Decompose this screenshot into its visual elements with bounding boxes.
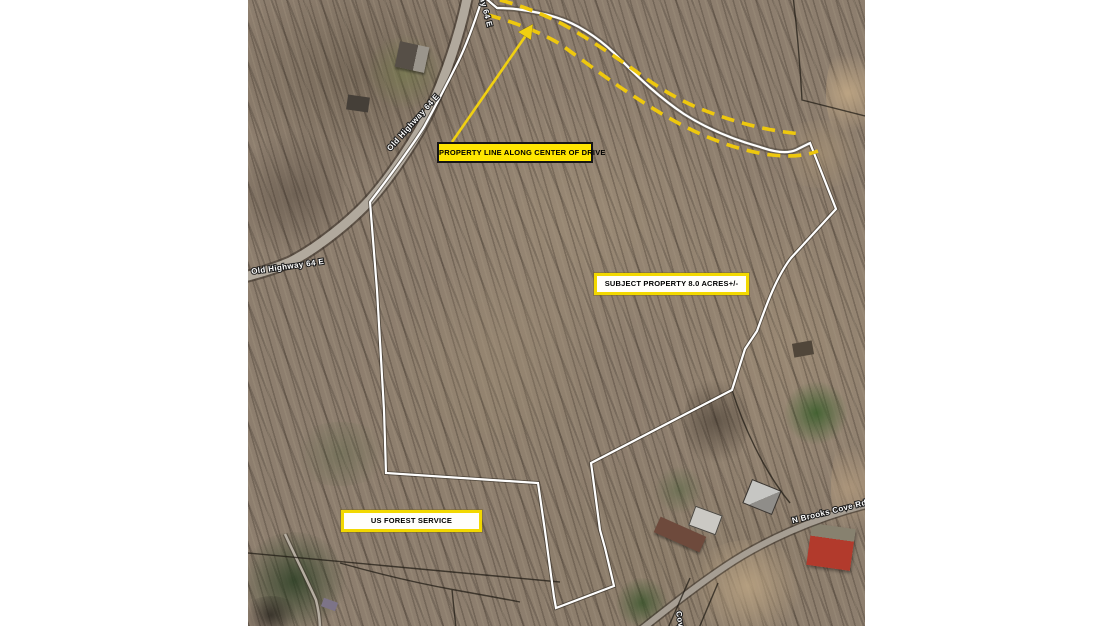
callout-property-line: PROPERTY LINE ALONG CENTER OF DRIVE bbox=[437, 142, 593, 163]
road-small-surface bbox=[285, 534, 320, 626]
callout-subject-property: SUBJECT PROPERTY 8.0 ACRES+/- bbox=[594, 273, 749, 295]
road-brooks-cove-surface bbox=[638, 504, 865, 626]
callout-us-forest: US FOREST SERVICE bbox=[341, 510, 482, 532]
aerial-map: Old Highway 64 E Old Highway 64 E Old Hi… bbox=[248, 0, 865, 626]
aerial-plat-page: Old Highway 64 E Old Highway 64 E Old Hi… bbox=[0, 0, 1112, 626]
drive-dashed-lower bbox=[488, 15, 818, 156]
road-label-bottom-partial: Cove Rd bbox=[674, 610, 689, 626]
road-old-highway-surface bbox=[248, 0, 468, 277]
drive bbox=[497, 8, 810, 152]
map-overlay: Old Highway 64 E Old Highway 64 E Old Hi… bbox=[248, 0, 865, 626]
drive-dashed-upper bbox=[500, 0, 802, 134]
parcel-lines bbox=[248, 0, 865, 626]
road-old-highway bbox=[248, 0, 468, 277]
drive-surface bbox=[497, 8, 810, 152]
